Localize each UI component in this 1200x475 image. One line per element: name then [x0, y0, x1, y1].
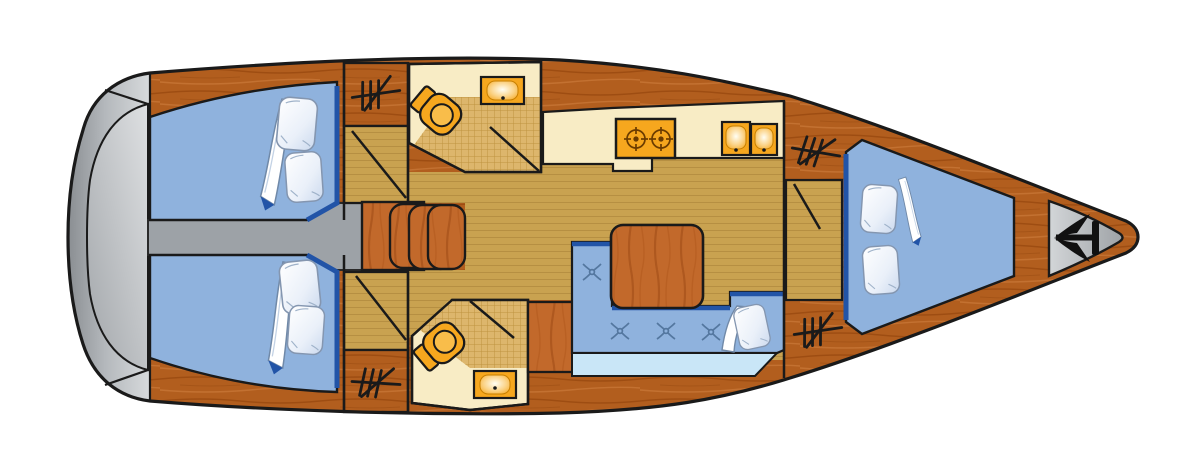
- sink-basin: [481, 77, 524, 104]
- pillow: [276, 96, 318, 151]
- hanging-locker-starboard: [344, 350, 408, 412]
- stove: [616, 119, 675, 158]
- step: [428, 205, 465, 269]
- pillow: [287, 305, 325, 355]
- aft-cabin-starboard-entry: [344, 272, 408, 350]
- aft-cabin-port-entry: [344, 126, 408, 203]
- wardrobe: [528, 302, 575, 372]
- settee-backrest: [572, 353, 777, 376]
- stern-swim-platform: [68, 73, 150, 401]
- companionway-steps: [362, 202, 465, 270]
- galley-double-sink: [722, 122, 777, 155]
- yacht-floor-plan: [0, 0, 1200, 475]
- hanging-locker-port: [344, 63, 408, 126]
- sink-basin: [474, 371, 516, 398]
- salon-table: [611, 225, 703, 308]
- pillow: [862, 245, 900, 295]
- pillow: [860, 184, 898, 234]
- yacht-floor-plan-page: [0, 0, 1200, 475]
- forward-cabin-entry: [786, 180, 842, 300]
- pillow: [284, 151, 323, 203]
